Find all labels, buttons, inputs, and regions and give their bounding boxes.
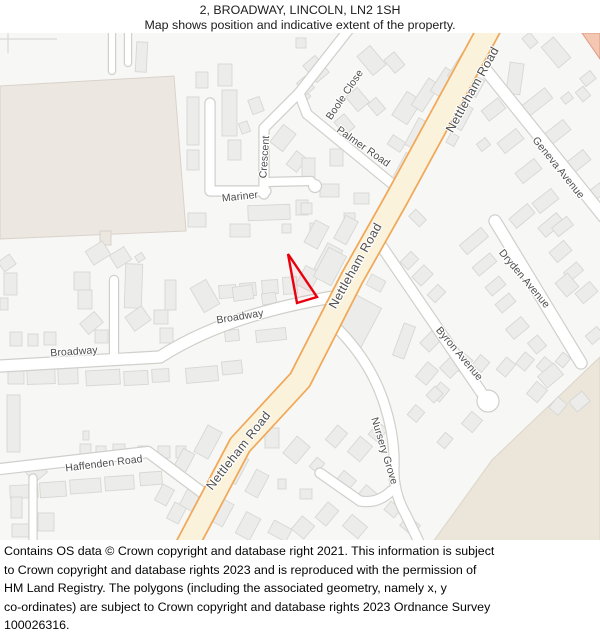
building: [74, 272, 90, 290]
building: [105, 475, 135, 491]
building: [296, 38, 306, 48]
building: [0, 298, 8, 310]
copyright-line: co-ordinates) are subject to Crown copyr…: [4, 598, 600, 617]
building: [221, 360, 242, 375]
building: [300, 489, 312, 499]
building: [354, 193, 369, 204]
road-crescent-stub: [266, 181, 311, 182]
building: [4, 273, 17, 295]
building: [187, 97, 199, 145]
building: [278, 479, 286, 489]
building: [187, 150, 199, 170]
copyright-notice: Contains OS data © Crown copyright and d…: [0, 540, 600, 627]
building: [124, 370, 149, 385]
building: [218, 64, 232, 86]
building: [185, 366, 218, 384]
building: [7, 395, 20, 452]
building: [40, 481, 67, 498]
building: [70, 478, 102, 494]
copyright-line: to Crown copyright and database rights 2…: [4, 561, 600, 580]
building: [95, 330, 108, 343]
building: [11, 497, 22, 518]
building: [10, 332, 22, 346]
building: [282, 224, 291, 233]
building: [230, 224, 250, 237]
building: [86, 369, 121, 386]
building: [38, 513, 54, 531]
page-title: 2, BROADWAY, LINCOLN, LN2 1SH: [0, 0, 600, 18]
building: [255, 327, 286, 342]
building: [140, 471, 163, 486]
building: [44, 332, 56, 345]
building: [232, 285, 254, 302]
building: [228, 140, 241, 160]
map-header: 2, BROADWAY, LINCOLN, LN2 1SH Map shows …: [0, 0, 600, 33]
building: [58, 368, 79, 385]
copyright-line: 100026316.: [4, 616, 600, 635]
building: [165, 280, 176, 310]
building: [262, 279, 279, 294]
building: [28, 334, 38, 346]
building: [78, 290, 92, 309]
area-playing-field: [0, 76, 186, 239]
building: [135, 42, 148, 73]
building: [188, 213, 206, 227]
building: [152, 369, 170, 383]
building: [222, 90, 237, 136]
building: [330, 149, 343, 166]
building: [154, 310, 168, 324]
copyright-line: Contains OS data © Crown copyright and d…: [4, 542, 600, 561]
building: [160, 328, 173, 343]
page-subtitle: Map shows position and indicative extent…: [0, 18, 600, 33]
building: [248, 204, 290, 220]
building: [196, 72, 208, 88]
building: [301, 203, 312, 214]
map-container: Boole ClosePalmer RoadNettleham RoadNett…: [0, 33, 600, 540]
building: [320, 184, 339, 197]
building: [124, 264, 143, 309]
building: [83, 431, 89, 440]
map-canvas: Boole ClosePalmer RoadNettleham RoadNett…: [0, 33, 600, 540]
copyright-line: HM Land Registry. The polygons (includin…: [4, 579, 600, 598]
building: [12, 524, 29, 537]
building: [302, 158, 315, 177]
